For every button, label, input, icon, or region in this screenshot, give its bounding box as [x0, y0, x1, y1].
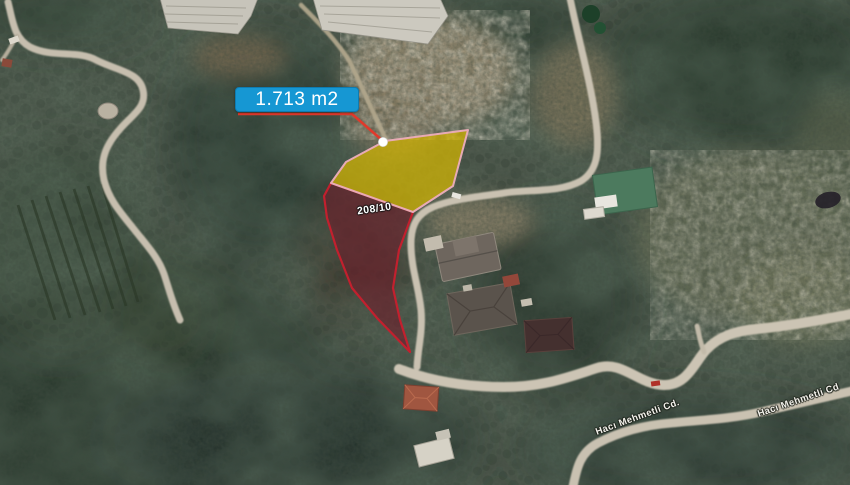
area-label[interactable]: 1.713 m2 — [235, 87, 359, 112]
leader-line — [238, 114, 383, 141]
parcel-overlay-layer — [0, 0, 850, 485]
satellite-map-canvas[interactable]: 1.713 m2 208/10 Hacı Mehmetli Cd. Hacı M… — [0, 0, 850, 485]
parcel-marker-dot[interactable] — [378, 137, 387, 146]
